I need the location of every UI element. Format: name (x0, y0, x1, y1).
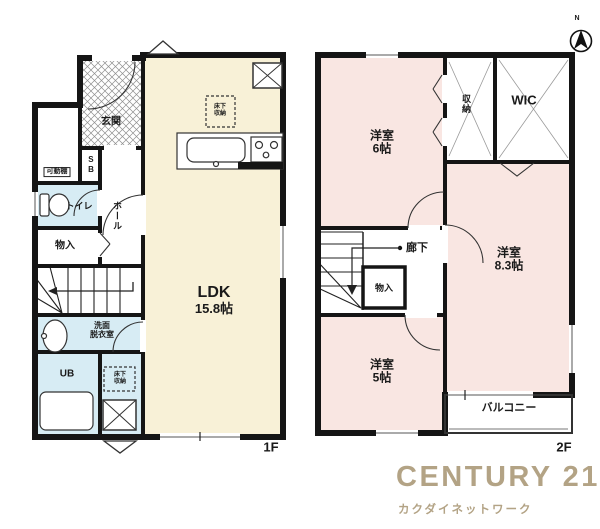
label-wic: WIC (511, 94, 536, 109)
label-room83: 洋室 8.3帖 (495, 247, 524, 274)
label-genkan: 玄関 (101, 116, 121, 127)
label-ldk-line1: LDK (195, 284, 233, 302)
label-kadodana: 可動棚 (44, 167, 71, 177)
label-monoire-1f: 物入 (55, 240, 75, 251)
company-name: カクダイネットワーク (398, 501, 533, 517)
label-monoire-2f: 物入 (375, 283, 393, 293)
label-shoebox: SB (86, 155, 95, 175)
label-floor2: 2F (556, 441, 571, 456)
label-room6: 洋室 6帖 (370, 130, 394, 157)
floor2-plan (318, 51, 575, 436)
label-hall: ホール (112, 201, 122, 231)
label-room5: 洋室 5帖 (370, 359, 394, 386)
century21-logo: CENTURY 21 (396, 461, 600, 494)
label-yukashita-1-line2: 収納 (114, 379, 126, 386)
label-ub: UB (60, 368, 74, 379)
label-rouka: 廊下 (406, 242, 428, 254)
label-toilet: トイレ (65, 201, 92, 211)
label-yukashita-1: 床下 収納 (114, 372, 126, 386)
floor-plan-page: 玄関 可動棚 SB トイレ ホール 物入 洗面 脱衣室 UB 床下 収納 床下 … (0, 0, 600, 529)
label-room5-line2: 5帖 (370, 372, 394, 385)
label-floor1: 1F (263, 441, 278, 456)
label-room6-line2: 6帖 (370, 143, 394, 156)
label-yukashita-2: 床下 収納 (214, 104, 226, 118)
label-senmen-line2: 脱衣室 (90, 331, 114, 340)
label-senmen: 洗面 脱衣室 (90, 322, 114, 340)
compass-north-label: N (574, 15, 579, 23)
label-room83-line2: 8.3帖 (495, 260, 524, 273)
compass-icon (571, 30, 592, 52)
label-balcony: バルコニー (482, 402, 537, 414)
label-ldk-line2: 15.8帖 (195, 302, 233, 317)
label-shuno: 収納 (461, 94, 471, 114)
label-yukashita-2-line2: 収納 (214, 111, 226, 118)
label-ldk: LDK 15.8帖 (195, 284, 233, 316)
